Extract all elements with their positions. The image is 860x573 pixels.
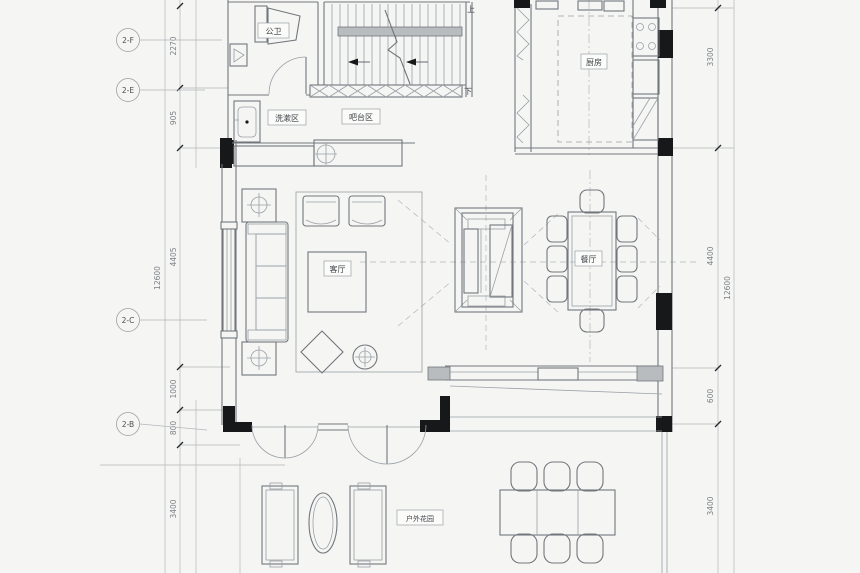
floor-plan-canvas: 2270 905 4405 1000 800 3400 12600 3300 4… bbox=[0, 0, 860, 573]
stair-up-label: 上 bbox=[467, 5, 475, 14]
plant-stand bbox=[242, 342, 276, 375]
dim-right-3: 600 bbox=[706, 389, 715, 404]
ottoman bbox=[301, 331, 343, 373]
sofa bbox=[246, 222, 288, 342]
corner-cabinet bbox=[633, 98, 658, 140]
central-feature bbox=[455, 208, 522, 312]
kitchen-sink bbox=[578, 1, 602, 10]
floor-plan-screenshot: 2270 905 4405 1000 800 3400 12600 3300 4… bbox=[0, 0, 860, 573]
room-label-living-room: 客厅 bbox=[330, 264, 346, 274]
grid-bubble-2f: 2-F bbox=[122, 36, 134, 45]
kitchen-island-outline bbox=[558, 16, 632, 142]
armchair bbox=[349, 196, 385, 226]
kitchen-counter-fixture bbox=[604, 1, 624, 11]
dining-chair bbox=[580, 309, 604, 332]
dim-right-total: 12600 bbox=[723, 276, 732, 300]
dim-left-6: 3400 bbox=[169, 499, 178, 518]
outdoor-chair bbox=[577, 534, 603, 563]
dining-chair bbox=[547, 276, 567, 302]
outdoor-chair bbox=[511, 462, 537, 491]
wash-vanity bbox=[234, 101, 260, 142]
dining-chair bbox=[580, 190, 604, 213]
outdoor-chair bbox=[577, 462, 603, 491]
dining-chair bbox=[547, 216, 567, 242]
dim-right-1: 3300 bbox=[706, 47, 715, 66]
dining-chair bbox=[547, 246, 567, 272]
grid-bubble-2c: 2-C bbox=[122, 316, 135, 325]
dining-chair bbox=[617, 246, 637, 272]
grid-bubble-2e: 2-E bbox=[122, 86, 134, 95]
room-label-dining-room: 餐厅 bbox=[581, 255, 597, 264]
rug bbox=[296, 192, 422, 372]
living-room-furniture bbox=[242, 189, 422, 375]
dim-left-2: 905 bbox=[169, 111, 178, 126]
centerlines bbox=[360, 0, 700, 362]
kitchen-cabinet bbox=[633, 60, 659, 94]
dim-left-1: 2270 bbox=[169, 36, 178, 55]
dim-left-5: 800 bbox=[169, 421, 178, 436]
room-label-bathroom: 公卫 bbox=[266, 27, 282, 36]
sun-lounger bbox=[350, 483, 386, 567]
kitchen-fixtures bbox=[536, 0, 659, 148]
grid-bubble-2b: 2-B bbox=[122, 420, 134, 429]
oval-garden-table bbox=[309, 493, 337, 553]
round-side-table bbox=[353, 345, 377, 369]
stair-handrail bbox=[338, 27, 462, 36]
stair-break-line bbox=[385, 10, 410, 84]
dining-chair bbox=[617, 276, 637, 302]
room-labels: 公卫 洗漱区 吧台区 厨房 客厅 餐厅 户外花园 bbox=[258, 23, 607, 525]
dim-right-2: 4400 bbox=[706, 246, 715, 265]
dim-left-3: 4405 bbox=[169, 247, 178, 266]
plant-stand bbox=[242, 189, 276, 222]
bar-counter bbox=[310, 85, 462, 97]
room-label-outdoor-garden: 户外花园 bbox=[406, 514, 434, 523]
dining-chair bbox=[617, 216, 637, 242]
staircase: 上 下 bbox=[324, 4, 475, 96]
outdoor-chair bbox=[544, 534, 570, 563]
kitchen-counter-fixture bbox=[536, 1, 558, 9]
outdoor-chair bbox=[511, 534, 537, 563]
room-label-kitchen: 厨房 bbox=[586, 57, 602, 67]
grid-bubbles: 2-F 2-E 2-C 2-B bbox=[117, 29, 223, 436]
dim-left-4: 1000 bbox=[169, 379, 178, 398]
cooktop bbox=[633, 18, 659, 56]
dim-left-total: 12600 bbox=[153, 266, 162, 290]
hall-console bbox=[234, 140, 402, 166]
stair-down-label: 下 bbox=[464, 87, 472, 96]
dim-right-4: 3400 bbox=[706, 496, 715, 515]
outdoor-dining-table bbox=[500, 462, 615, 563]
room-label-bar-area: 吧台区 bbox=[349, 112, 373, 122]
armchair bbox=[303, 196, 339, 226]
outdoor-chair bbox=[544, 462, 570, 491]
sun-lounger bbox=[262, 483, 298, 567]
room-label-wash-area: 洗漱区 bbox=[275, 113, 299, 123]
